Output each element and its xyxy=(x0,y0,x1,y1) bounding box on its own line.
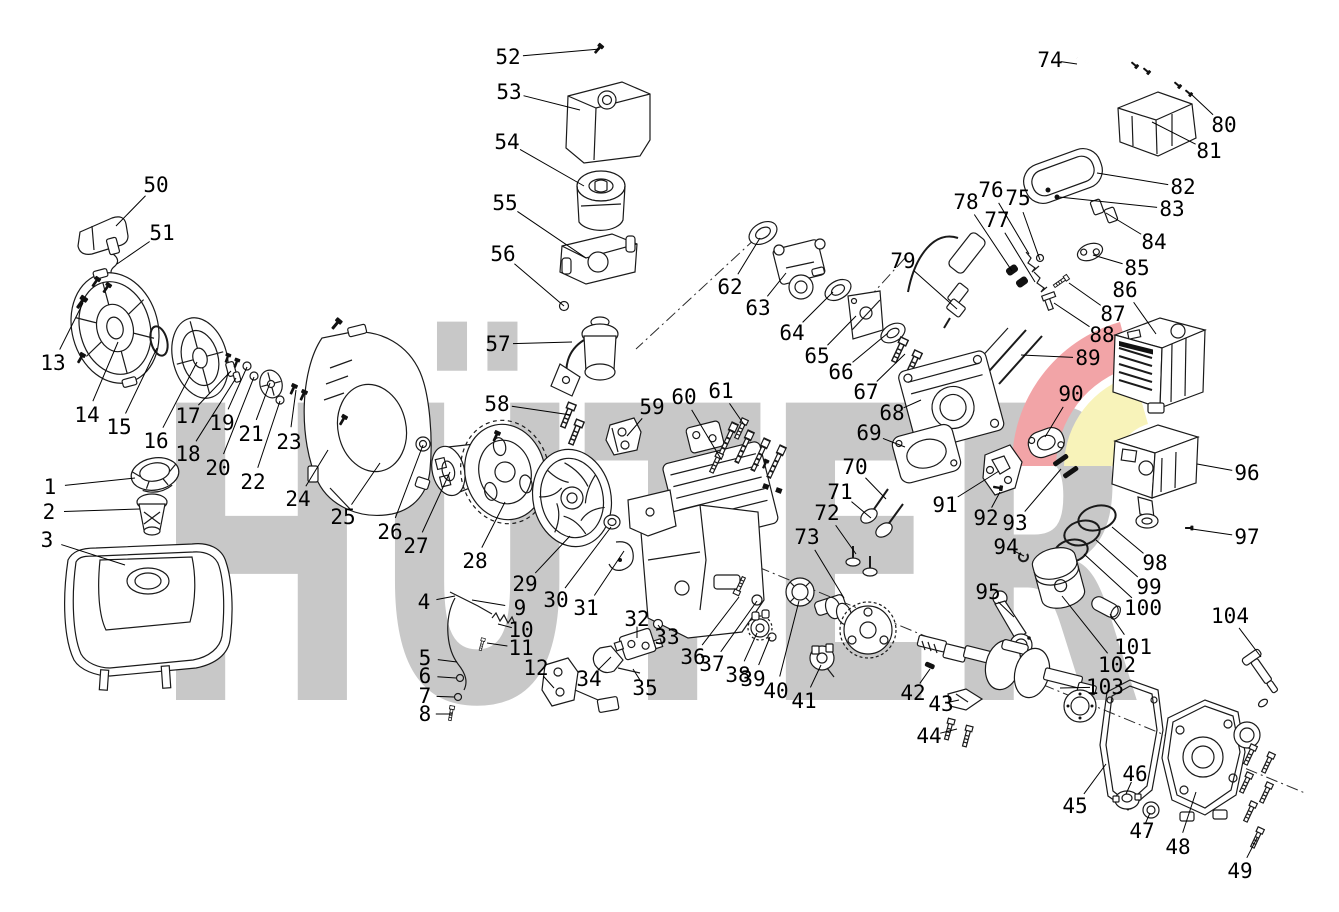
part-label-62: 62 xyxy=(717,275,742,299)
cover-screws xyxy=(1130,60,1194,97)
part-label-13: 13 xyxy=(40,351,65,375)
part-label-58: 58 xyxy=(484,392,509,416)
part-label-43: 43 xyxy=(928,692,953,716)
part-label-65: 65 xyxy=(804,344,829,368)
part-label-17: 17 xyxy=(175,404,200,428)
part-label-75: 75 xyxy=(1005,186,1030,210)
part-label-12: 12 xyxy=(523,656,548,680)
leader-line-55 xyxy=(517,211,586,258)
leader-line-80 xyxy=(1191,94,1213,115)
part-label-98: 98 xyxy=(1142,551,1167,575)
part-label-27: 27 xyxy=(403,534,428,558)
part-label-22: 22 xyxy=(240,470,265,494)
part-label-77: 77 xyxy=(984,208,1009,232)
diagram-canvas: HÜTER xyxy=(0,0,1339,912)
part-label-94: 94 xyxy=(993,535,1018,559)
part-label-89: 89 xyxy=(1075,346,1100,370)
part-label-61: 61 xyxy=(708,379,733,403)
part-label-100: 100 xyxy=(1124,596,1162,620)
leader-line-1 xyxy=(65,478,135,485)
part-label-73: 73 xyxy=(794,525,819,549)
part-label-76: 76 xyxy=(978,178,1003,202)
leader-line-7 xyxy=(437,696,454,697)
part-label-8: 8 xyxy=(419,702,432,726)
part-label-48: 48 xyxy=(1165,835,1190,859)
leader-line-85 xyxy=(1093,255,1123,264)
part-label-56: 56 xyxy=(490,242,515,266)
part-label-44: 44 xyxy=(916,724,941,748)
part-label-47: 47 xyxy=(1129,819,1154,843)
heat-shield-plate xyxy=(848,291,883,339)
part-label-21: 21 xyxy=(238,422,263,446)
part-label-60: 60 xyxy=(671,385,696,409)
part-label-97: 97 xyxy=(1234,525,1259,549)
part-label-4: 4 xyxy=(418,590,431,614)
starter-handle xyxy=(78,217,128,255)
part-label-30: 30 xyxy=(543,588,568,612)
part-label-3: 3 xyxy=(41,528,54,552)
part-label-52: 52 xyxy=(495,45,520,69)
part-label-25: 25 xyxy=(330,505,355,529)
part-label-104: 104 xyxy=(1211,604,1249,628)
part-label-53: 53 xyxy=(496,80,521,104)
oil-dipstick xyxy=(1241,648,1284,697)
part-label-19: 19 xyxy=(209,411,234,435)
air-filter-element xyxy=(577,171,625,230)
leader-line-2 xyxy=(64,509,140,512)
part-label-83: 83 xyxy=(1159,197,1184,221)
leader-line-96 xyxy=(1197,464,1232,470)
air-filter-cover xyxy=(566,82,650,163)
part-label-80: 80 xyxy=(1211,113,1236,137)
leader-line-50 xyxy=(116,196,146,226)
part-label-54: 54 xyxy=(494,130,519,154)
part-label-78: 78 xyxy=(953,190,978,214)
leader-line-83 xyxy=(1059,197,1157,207)
carburetor xyxy=(772,239,825,299)
part-label-59: 59 xyxy=(639,395,664,419)
part-label-37: 37 xyxy=(699,652,724,676)
cover-gasket xyxy=(1019,144,1108,209)
part-label-29: 29 xyxy=(512,572,537,596)
part-label-90: 90 xyxy=(1058,382,1083,406)
part-label-68: 68 xyxy=(879,401,904,425)
leader-line-84 xyxy=(1106,213,1141,234)
valve-spring-keepers xyxy=(1005,252,1047,292)
part-label-31: 31 xyxy=(573,596,598,620)
part-label-103: 103 xyxy=(1086,675,1124,699)
part-label-49: 49 xyxy=(1227,859,1252,883)
leader-line-49 xyxy=(1247,838,1257,858)
part-label-69: 69 xyxy=(856,421,881,445)
leader-line-97 xyxy=(1192,529,1232,535)
part-label-55: 55 xyxy=(492,191,517,215)
part-label-18: 18 xyxy=(175,442,200,466)
part-label-70: 70 xyxy=(842,455,867,479)
part-label-23: 23 xyxy=(276,430,301,454)
part-label-16: 16 xyxy=(143,429,168,453)
fan-washer xyxy=(604,515,620,529)
rocker-stud xyxy=(1042,292,1056,311)
part-label-67: 67 xyxy=(853,380,878,404)
part-label-51: 51 xyxy=(149,221,174,245)
starter-cup-nut xyxy=(416,437,430,451)
part-label-79: 79 xyxy=(890,249,915,273)
part-label-93: 93 xyxy=(1002,511,1027,535)
part-label-85: 85 xyxy=(1124,256,1149,280)
part-label-95: 95 xyxy=(975,580,1000,604)
shield-bolt xyxy=(1185,526,1193,531)
part-label-33: 33 xyxy=(654,625,679,649)
oil-seal xyxy=(1143,802,1159,818)
part-label-34: 34 xyxy=(576,667,601,691)
part-label-82: 82 xyxy=(1170,175,1195,199)
part-label-45: 45 xyxy=(1062,794,1087,818)
air-filter-base xyxy=(560,234,637,284)
part-label-9: 9 xyxy=(514,596,527,620)
part-label-57: 57 xyxy=(485,332,510,356)
part-label-86: 86 xyxy=(1112,278,1137,302)
leader-line-87 xyxy=(1069,283,1101,305)
part-label-63: 63 xyxy=(745,296,770,320)
leader-line-62 xyxy=(738,238,760,274)
part-label-24: 24 xyxy=(285,487,310,511)
carb-gasket-1 xyxy=(745,217,781,249)
part-label-20: 20 xyxy=(205,456,230,480)
part-label-72: 72 xyxy=(814,501,839,525)
part-label-2: 2 xyxy=(43,500,56,524)
leader-line-82 xyxy=(1097,173,1168,185)
breather-tube xyxy=(1077,58,1115,87)
part-label-28: 28 xyxy=(462,549,487,573)
part-label-81: 81 xyxy=(1196,139,1221,163)
part-label-50: 50 xyxy=(143,173,168,197)
part-label-66: 66 xyxy=(828,360,853,384)
part-label-1: 1 xyxy=(44,475,57,499)
part-label-26: 26 xyxy=(377,520,402,544)
part-label-35: 35 xyxy=(632,676,657,700)
part-label-32: 32 xyxy=(624,607,649,631)
part-label-40: 40 xyxy=(763,679,788,703)
part-label-96: 96 xyxy=(1234,461,1259,485)
crankcase-cover xyxy=(1162,700,1245,821)
part-label-64: 64 xyxy=(779,321,804,345)
leader-line-74 xyxy=(1061,62,1077,64)
part-label-41: 41 xyxy=(791,689,816,713)
part-label-46: 46 xyxy=(1122,762,1147,786)
spark-plug-lead xyxy=(908,231,987,328)
part-label-15: 15 xyxy=(106,415,131,439)
part-label-102: 102 xyxy=(1098,653,1136,677)
part-label-14: 14 xyxy=(74,403,99,427)
leader-line-56 xyxy=(514,264,564,306)
part-label-92: 92 xyxy=(973,506,998,530)
exploded-parts-diagram: HÜTER xyxy=(0,0,1339,912)
leader-line-79 xyxy=(914,271,957,309)
part-label-42: 42 xyxy=(900,681,925,705)
leader-line-52 xyxy=(523,49,600,56)
part-label-91: 91 xyxy=(932,493,957,517)
leader-line-75 xyxy=(1023,212,1040,260)
rocker-bolt xyxy=(1053,274,1070,288)
part-label-39: 39 xyxy=(740,667,765,691)
part-label-84: 84 xyxy=(1141,230,1166,254)
rocker-arm xyxy=(1075,240,1105,264)
cover-bearing xyxy=(1234,722,1260,748)
leader-line-104 xyxy=(1239,628,1261,657)
ball-bearing-camside xyxy=(786,578,814,606)
part-label-74: 74 xyxy=(1037,48,1062,72)
dipstick-oring xyxy=(1257,698,1269,709)
part-label-88: 88 xyxy=(1089,323,1114,347)
